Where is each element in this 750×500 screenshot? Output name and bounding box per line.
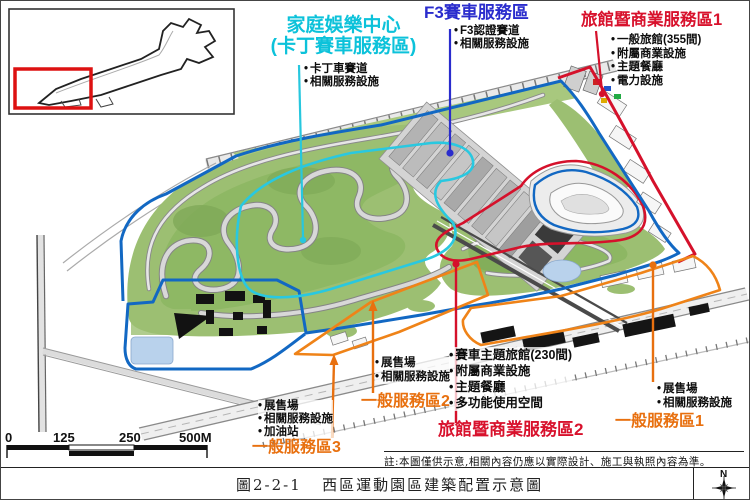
bullet-item: 電力設施 (611, 75, 701, 89)
hotel2-bullet-list: 賽車主題旅館(230間) 附屬商業設施 主題餐廳 多功能使用空間 (449, 347, 572, 411)
figure-title: 西區運動園區建築配置示意圖 (322, 476, 543, 494)
bullet-item: 賽車主題旅館(230間) (449, 347, 572, 363)
label-hotel-commercial-1: 旅館暨商業服務區1 (581, 12, 722, 30)
label-karting-zone: 家庭娛樂中心 (卡丁賽車服務區) (256, 16, 431, 57)
general3-bullet-list: 展售場 相關服務設施 加油站 (258, 400, 333, 438)
hotel1-bullet-list: 一般旅館(355間) 附屬商業設施 主題餐廳 電力設施 (611, 34, 701, 88)
label-karting-title-line1: 家庭娛樂中心 (256, 16, 431, 37)
bullet-item: 主題餐廳 (611, 61, 701, 75)
scale-tick: 500M (179, 430, 212, 445)
bullet-item: 一般旅館(355間) (611, 34, 701, 48)
figure-caption: 圖2-2-1 西區運動園區建築配置示意圖 (236, 474, 543, 495)
karting-bullet-list: 卡丁車賽道 相關服務設施 (304, 63, 379, 89)
bullet-item: 相關服務設施 (454, 38, 529, 51)
location-inset-map (9, 9, 234, 114)
scale-bar: 0 125 250 500M (5, 430, 212, 458)
bullet-item: 展售場 (258, 400, 333, 413)
general2-bullet-list: 展售場 相關服務設施 (375, 357, 450, 384)
caption-row: 圖2-2-1 西區運動園區建築配置示意圖 (1, 467, 750, 500)
bullet-item: 多功能使用空間 (449, 395, 572, 411)
bullet-item: 主題餐廳 (449, 379, 572, 395)
figure-number: 圖2-2-1 (236, 476, 302, 494)
site-plan-figure: 0 125 250 500M N 家庭娛樂中心 (卡丁賽車服務區) 卡丁車賽 (0, 0, 750, 500)
scale-tick: 125 (53, 430, 75, 445)
bullet-item: 展售場 (375, 357, 450, 371)
f3-bullet-list: F3認證賽道 相關服務設施 (454, 25, 529, 50)
label-general-service-3: 一般服務區3 (252, 439, 341, 456)
bullet-item: 附屬商業設施 (611, 48, 701, 62)
label-general-service-2: 一般服務區2 (361, 393, 450, 410)
bullet-item: F3認證賽道 (454, 25, 529, 38)
scale-tick: 0 (5, 430, 12, 445)
bullet-item: 卡丁車賽道 (304, 63, 379, 76)
label-general-service-1: 一般服務區1 (615, 413, 704, 430)
bullet-item: 附屬商業設施 (449, 363, 572, 379)
label-karting-title-line2: (卡丁賽車服務區) (256, 37, 431, 58)
bullet-item: 相關服務設施 (375, 371, 450, 385)
bullet-item: 展售場 (657, 383, 732, 397)
label-f3-zone: F3賽車服務區 (424, 4, 529, 22)
compass-cell (693, 468, 750, 500)
bullet-item: 相關服務設施 (657, 397, 732, 411)
scale-tick: 250 (119, 430, 141, 445)
label-hotel-commercial-2: 旅館暨商業服務區2 (438, 421, 583, 439)
general1-bullet-list: 展售場 相關服務設施 (657, 383, 732, 410)
bullet-item: 相關服務設施 (304, 76, 379, 89)
bullet-item: 相關服務設施 (258, 413, 333, 426)
bullet-item: 加油站 (258, 426, 333, 439)
